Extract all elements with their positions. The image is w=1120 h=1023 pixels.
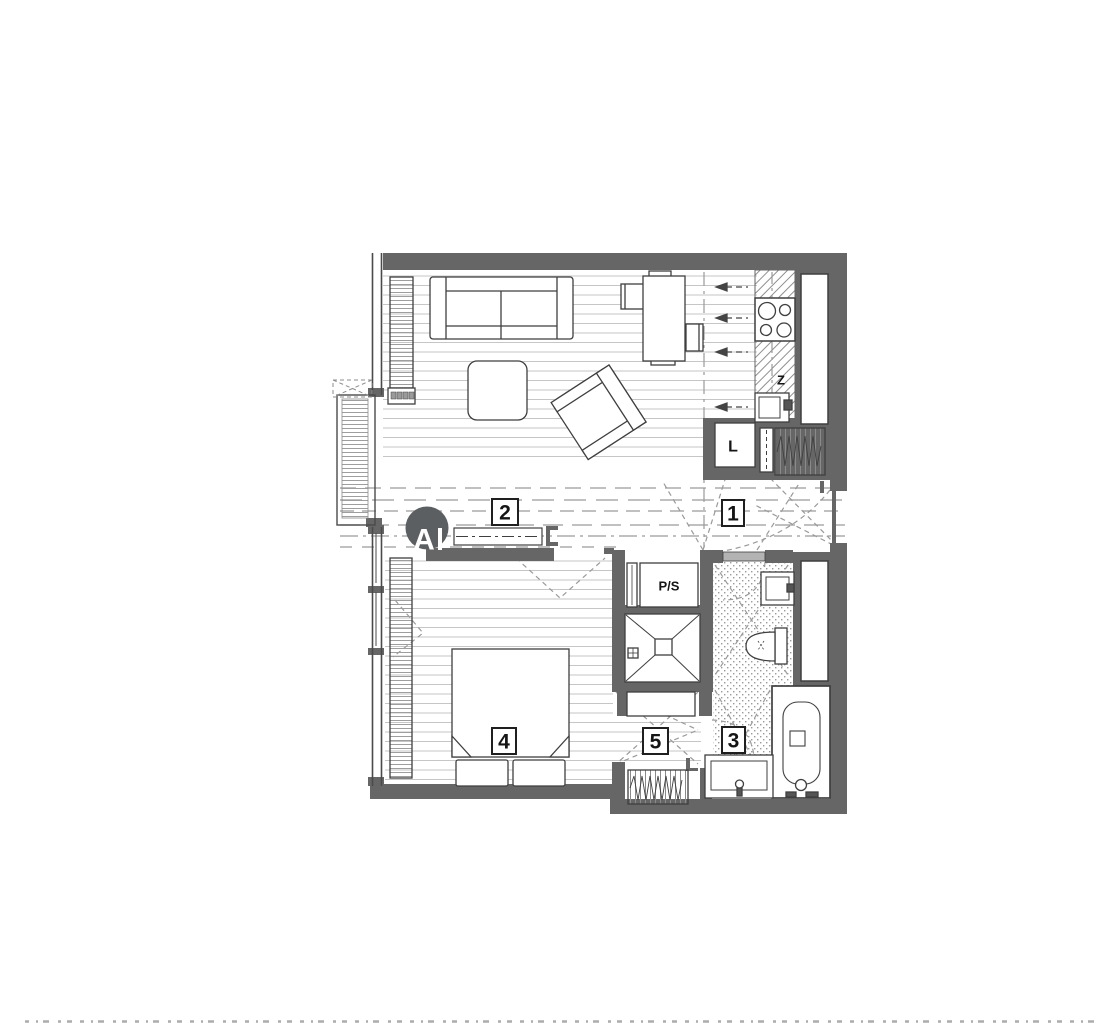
room-label-bedroom: 4: [498, 731, 510, 754]
wall-right-lower: [830, 543, 847, 814]
entry-door-jamb: [820, 481, 824, 493]
wall-wc-top-right: [765, 550, 793, 563]
kitchen-tall-unit: [801, 274, 828, 424]
window-walls: [337, 253, 382, 786]
door-swing: [757, 482, 800, 550]
wc-sink-basin: [766, 577, 789, 600]
sink-tap: [784, 400, 792, 410]
kitchen-sink: [755, 393, 792, 422]
wc-door-leaf: [723, 552, 765, 561]
wall-top: [383, 253, 847, 270]
washbasin: [705, 755, 773, 798]
washer-dryer-label: P/S: [659, 579, 680, 594]
room-label-bathroom: 3: [728, 730, 740, 753]
wall-shower-bottom: [617, 682, 709, 692]
section-marker-bar: [438, 528, 442, 550]
wc-sink-tap: [787, 584, 794, 592]
door-swing: [663, 482, 703, 550]
closet-label: L: [728, 439, 738, 456]
wall-niche-left: [617, 682, 627, 716]
shower: [625, 614, 700, 682]
shower-drain: [655, 639, 672, 655]
bathtub-tap: [786, 792, 796, 797]
bathtub: [772, 686, 830, 798]
dining-table: [643, 276, 685, 361]
panel-switch: [397, 392, 402, 399]
balcony: [333, 380, 372, 518]
kitchen-counter-label: Z: [777, 373, 785, 388]
wall-bath-door-upper: [700, 690, 712, 716]
coffee-table: [468, 361, 527, 420]
kitchen-stove: [755, 298, 795, 341]
burner: [780, 305, 791, 316]
wall-wc-top-left: [700, 550, 723, 563]
entry-wardrobe: [775, 428, 825, 475]
room-label-hallway: 1: [727, 503, 739, 526]
living-cabinet: [390, 277, 413, 388]
sink-basin: [759, 397, 780, 418]
niche-cabinet: [627, 692, 695, 716]
bathtub-drain: [796, 780, 807, 791]
wall-service-right: [700, 550, 713, 692]
wc-sink: [761, 572, 794, 605]
pillow-right: [513, 760, 565, 786]
room-label-living: 2: [499, 502, 511, 525]
floor-plan-drawing: A 2 1 4 5 3 L Z P/S: [0, 0, 1120, 1023]
wall-pocket-door: [426, 548, 554, 561]
bedroom-wardrobe: [390, 558, 412, 778]
bathtub-tap: [806, 792, 818, 797]
balcony-deck-hatch: [342, 399, 368, 518]
room-label-corridor: 5: [650, 731, 662, 754]
floor-plan-page: A 2 1 4 5 3 L Z P/S: [0, 0, 1120, 1023]
dining-chair-right: [686, 324, 703, 351]
panel-switch: [403, 392, 408, 399]
wall-bedroom-right: [612, 550, 625, 692]
bathtub-fitting: [790, 731, 805, 746]
wall-wardrobe-left: [612, 762, 625, 804]
section-marker-label: A: [413, 524, 435, 557]
wc-shaft-niche: [801, 561, 828, 681]
panel-switch: [391, 392, 396, 399]
wall-right-upper: [830, 253, 847, 491]
sofa: [430, 277, 573, 339]
pocket-door-jamb: [604, 548, 614, 554]
pillow-left: [456, 760, 508, 786]
toilet-tank: [775, 628, 787, 664]
entry-door-leaf: [832, 487, 836, 543]
sliding-door: [454, 528, 542, 545]
burner: [759, 303, 776, 320]
panel-switch: [409, 392, 414, 399]
burner: [777, 323, 791, 337]
corridor-wardrobe: [628, 770, 688, 804]
washbasin-tap-base: [736, 780, 744, 788]
burner: [761, 325, 772, 336]
